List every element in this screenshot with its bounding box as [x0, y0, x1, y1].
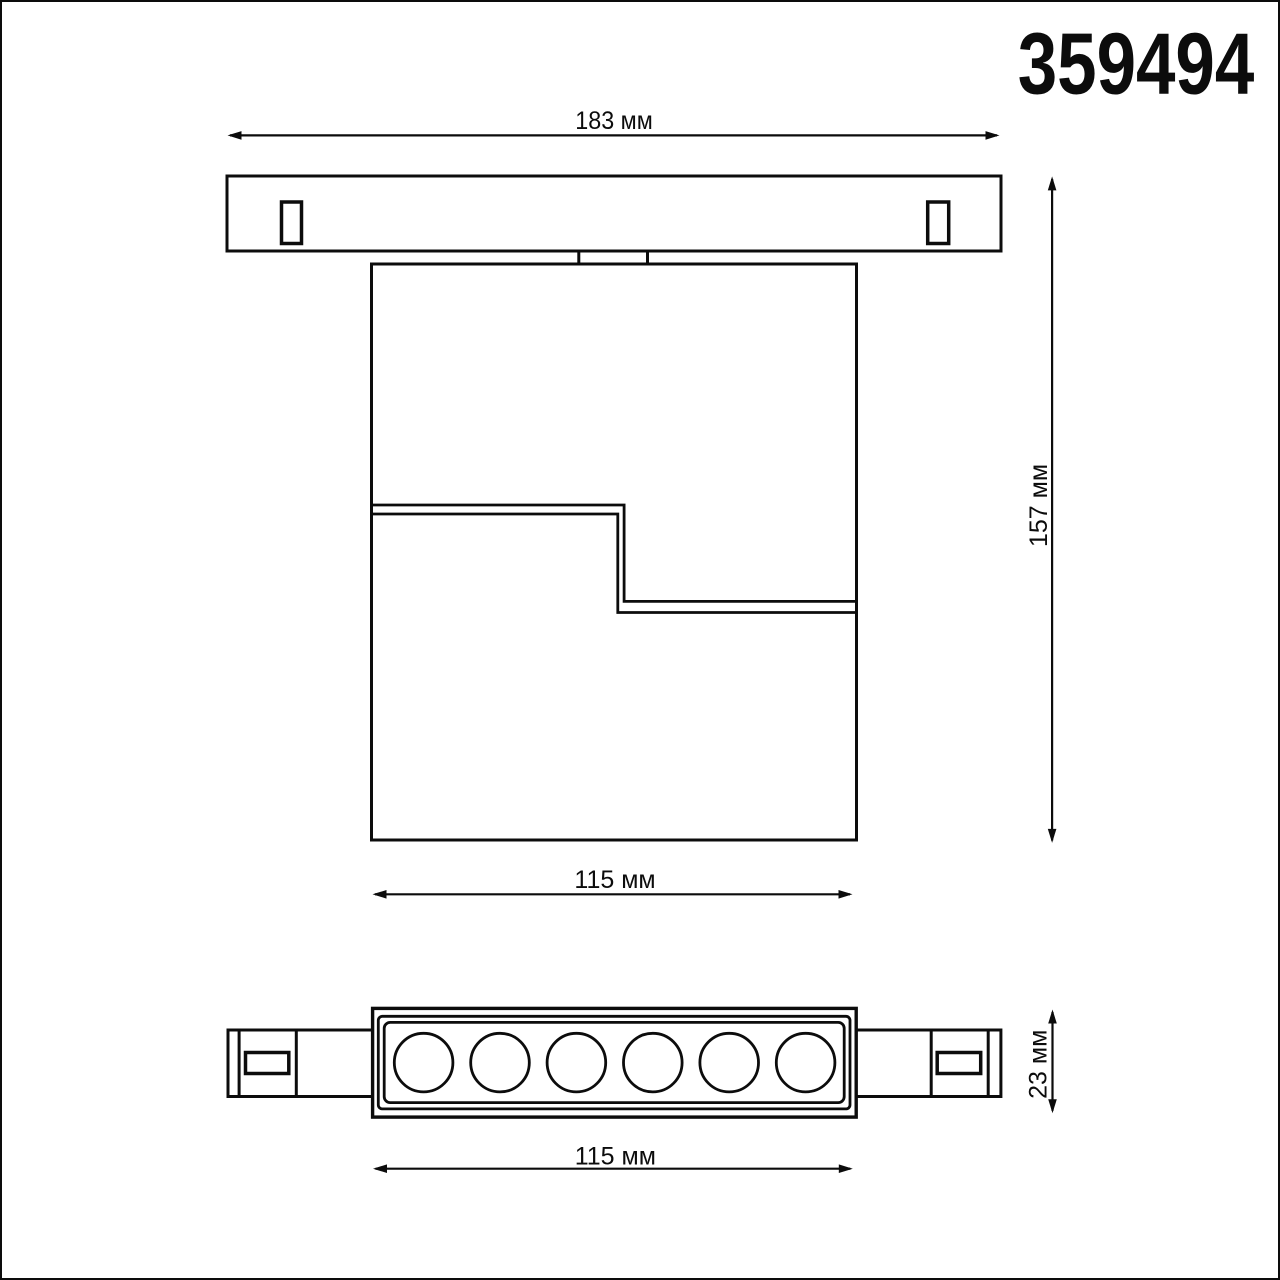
svg-text:157 мм: 157 мм: [1025, 464, 1053, 547]
svg-text:115 мм: 115 мм: [574, 866, 655, 894]
svg-text:359494: 359494: [1018, 15, 1255, 113]
svg-text:115 мм: 115 мм: [575, 1142, 656, 1170]
svg-text:23 мм: 23 мм: [1024, 1030, 1052, 1099]
svg-text:183 мм: 183 мм: [575, 107, 653, 135]
